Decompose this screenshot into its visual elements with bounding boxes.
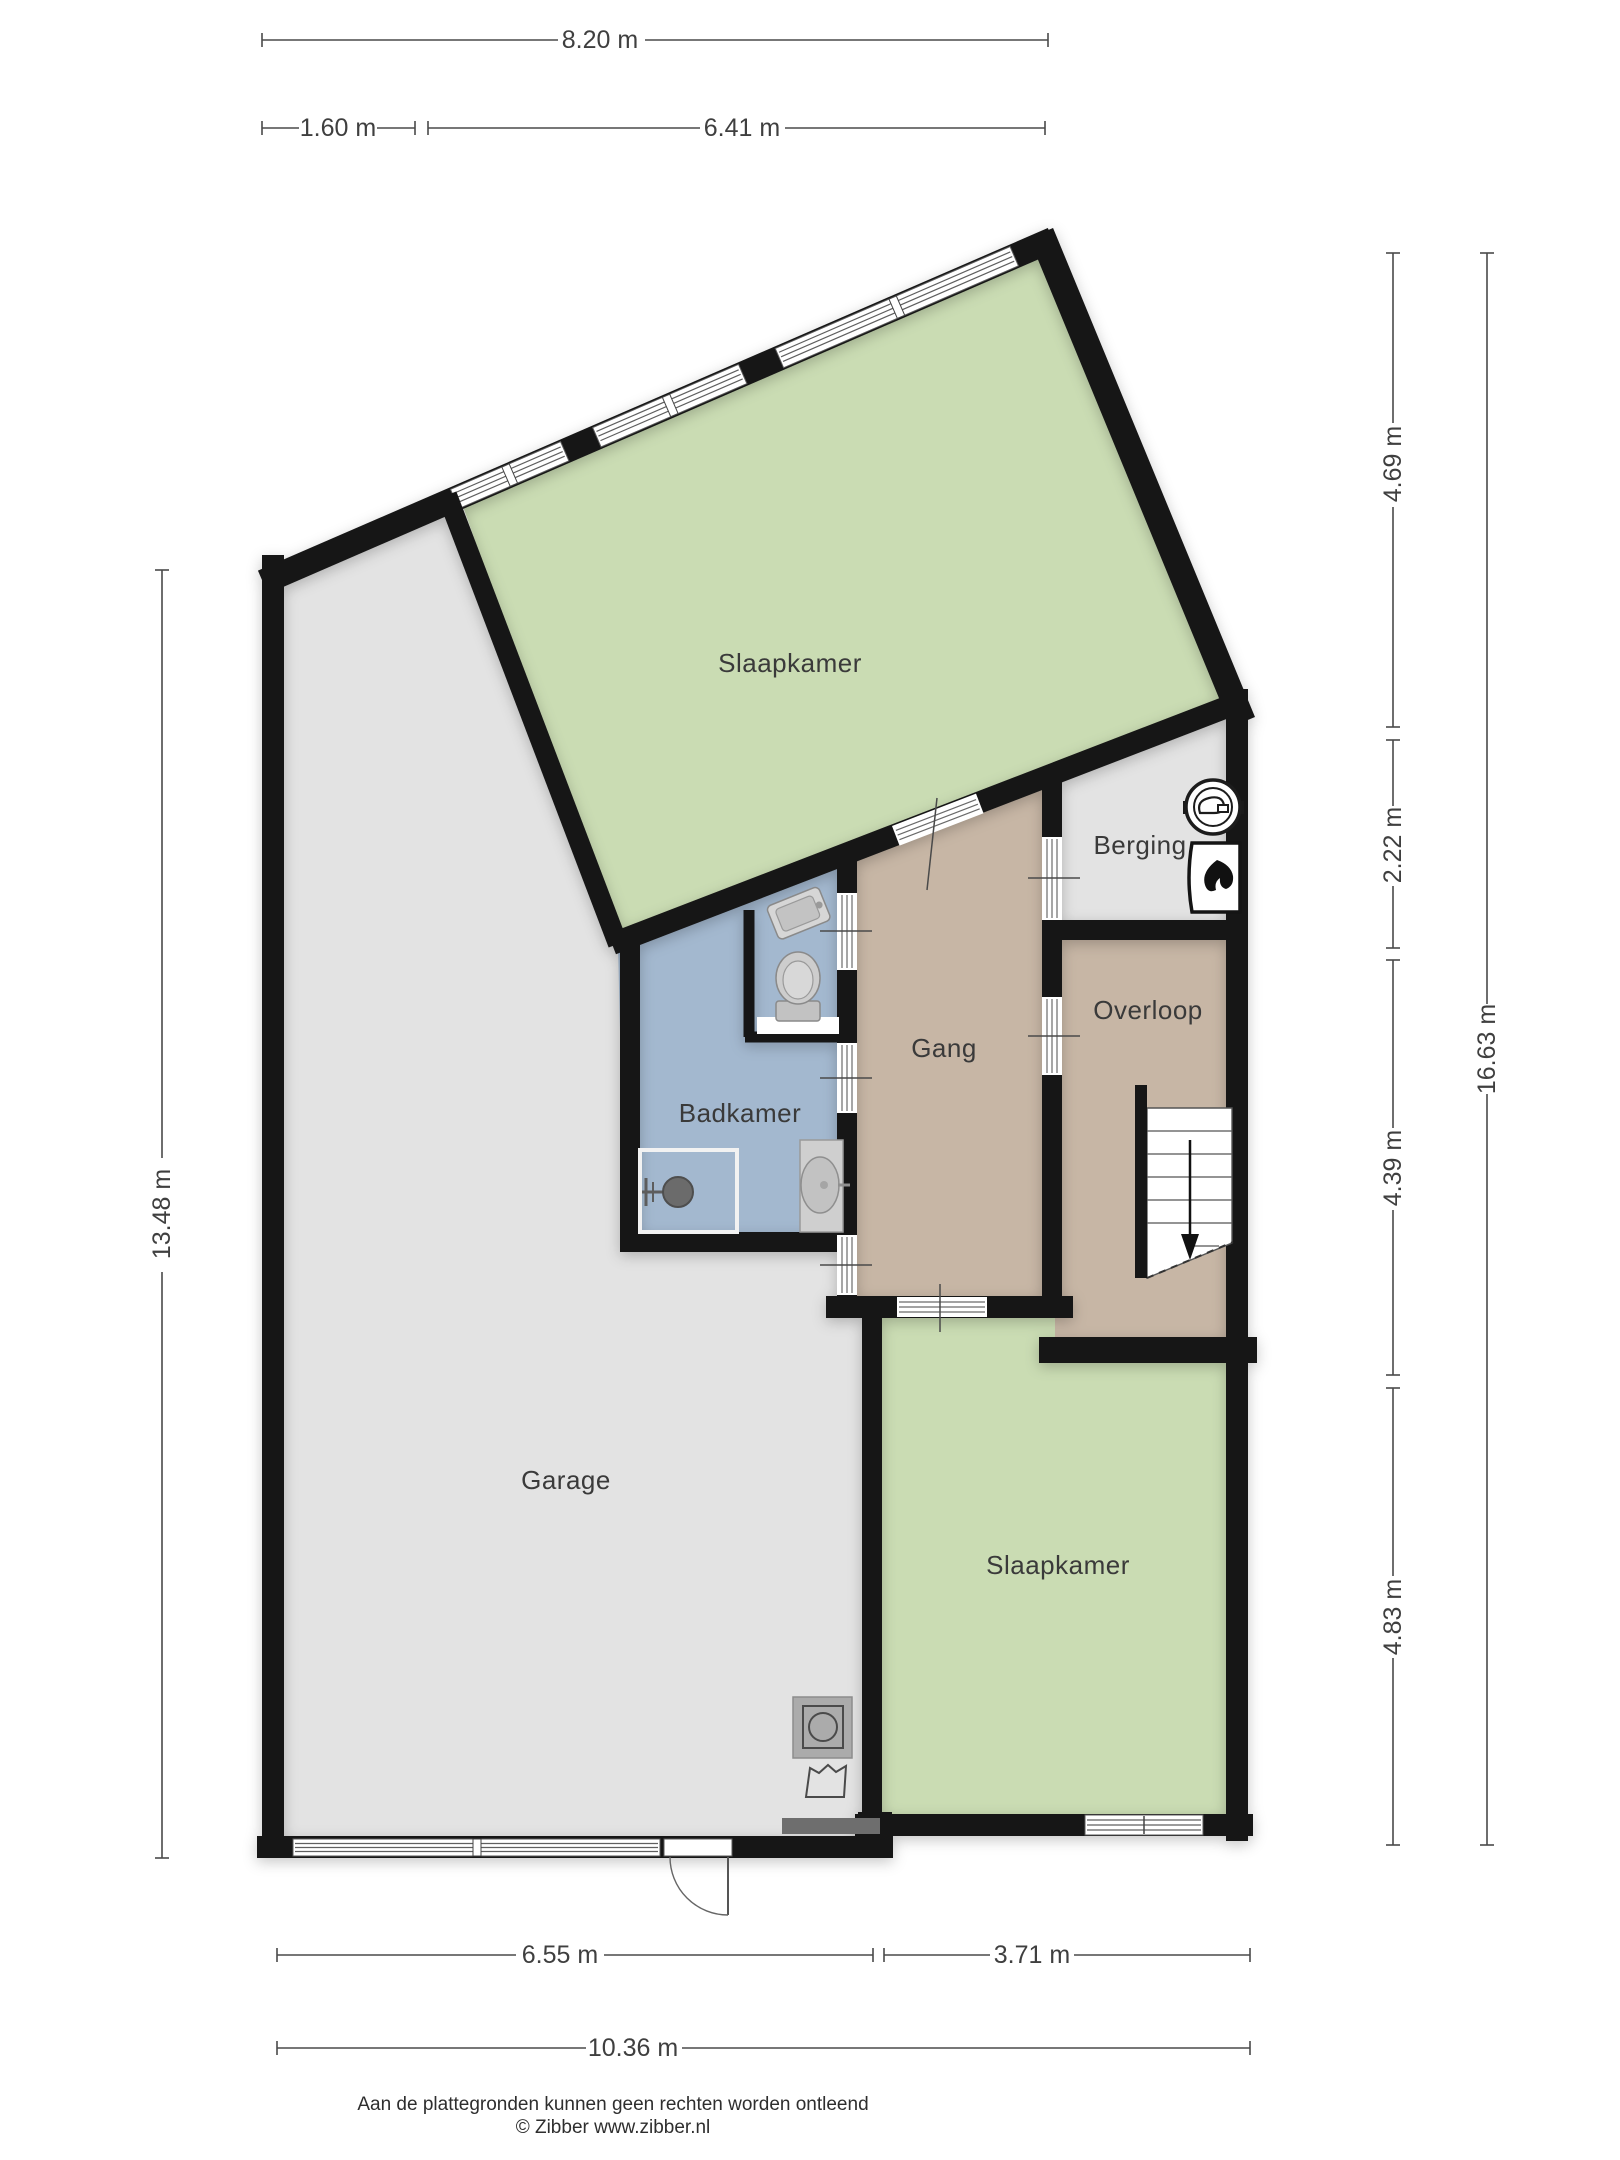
washing-machine-icon	[793, 1697, 852, 1758]
window-garage-front	[293, 1839, 660, 1856]
dim-right-lower-mid: 4.39 m	[1379, 960, 1407, 1375]
footer-copyright: © Zibber www.zibber.nl	[516, 2117, 711, 2138]
label-overloop: Overloop	[1093, 995, 1203, 1025]
label-berging: Berging	[1093, 830, 1186, 860]
footer-disclaimer: Aan de plattegronden kunnen geen rechten…	[357, 2094, 868, 2115]
svg-text:1.60 m: 1.60 m	[300, 114, 376, 142]
svg-text:6.41 m: 6.41 m	[704, 114, 780, 142]
dim-top-left: 1.60 m	[262, 114, 415, 142]
washbasin-icon	[800, 1140, 850, 1232]
svg-text:3.71 m: 3.71 m	[994, 1941, 1070, 1969]
dim-bottom-left: 6.55 m	[277, 1941, 873, 1969]
staircase-down-icon	[1135, 1085, 1233, 1278]
boiler-flame-icon	[1189, 843, 1240, 912]
svg-text:16.63 m: 16.63 m	[1473, 1004, 1501, 1094]
dim-top-right: 6.41 m	[428, 114, 1045, 142]
footer: Aan de plattegronden kunnen geen rechten…	[357, 2094, 868, 2138]
label-garage: Garage	[521, 1465, 611, 1495]
svg-text:10.36 m: 10.36 m	[588, 2034, 678, 2062]
label-slaapkamer-bottom: Slaapkamer	[986, 1550, 1130, 1580]
label-badkamer: Badkamer	[679, 1098, 802, 1128]
dim-right-total: 16.63 m	[1473, 253, 1501, 1845]
floorplan-page: 8.20 m 1.60 m 6.41 m 13.48 m 4.69 m	[0, 0, 1620, 2160]
floorplan-drawing: 8.20 m 1.60 m 6.41 m 13.48 m 4.69 m	[0, 0, 1620, 2160]
dim-right-top: 4.69 m	[1379, 253, 1407, 727]
dim-top-total: 8.20 m	[262, 26, 1048, 54]
dim-right-bottom: 4.83 m	[1379, 1388, 1407, 1845]
svg-text:6.55 m: 6.55 m	[522, 1941, 598, 1969]
svg-text:13.48 m: 13.48 m	[148, 1169, 176, 1259]
dim-bottom-total: 10.36 m	[277, 2034, 1250, 2062]
garage-threshold	[782, 1818, 880, 1834]
label-gang: Gang	[911, 1033, 977, 1063]
dim-bottom-right: 3.71 m	[884, 1941, 1250, 1969]
window-slaapkamer-bottom	[1085, 1815, 1203, 1835]
svg-text:4.83 m: 4.83 m	[1379, 1579, 1407, 1655]
entrance-door	[664, 1839, 732, 1915]
svg-text:8.20 m: 8.20 m	[562, 26, 638, 54]
dim-right-upper-mid: 2.22 m	[1379, 740, 1407, 948]
label-slaapkamer-top: Slaapkamer	[718, 648, 862, 678]
svg-text:2.22 m: 2.22 m	[1379, 807, 1407, 883]
dim-left-height: 13.48 m	[148, 570, 176, 1858]
svg-text:4.39 m: 4.39 m	[1379, 1130, 1407, 1206]
entrance-door-swing-icon	[670, 1857, 728, 1915]
svg-text:4.69 m: 4.69 m	[1379, 426, 1407, 502]
toilet-icon	[776, 952, 820, 1021]
